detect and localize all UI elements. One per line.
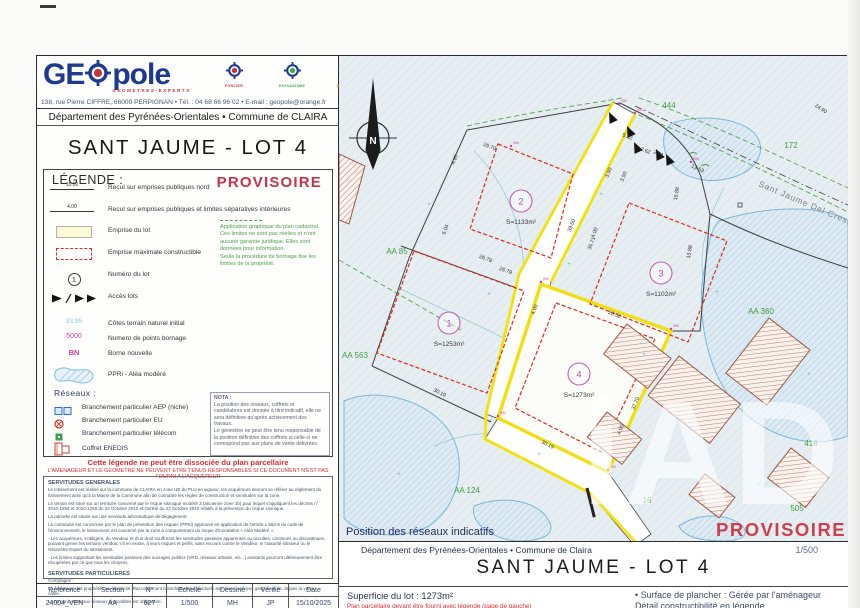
map-title: SANT JAUME - LOT 4 bbox=[339, 557, 848, 579]
logo-text-ge: GE bbox=[43, 58, 84, 92]
reseaux-heading: Réseaux : bbox=[54, 388, 96, 398]
nota-box: NOTA : La position des réseaux, coffrets… bbox=[210, 392, 330, 456]
title-divider bbox=[339, 586, 848, 587]
parcel-number-label: 172 bbox=[784, 141, 798, 150]
page-title: SANT JAUME - LOT 4 bbox=[37, 126, 339, 169]
borne-label: BN bbox=[500, 411, 506, 415]
nota-line: sera définitive qu'après achèvement des bbox=[214, 415, 326, 422]
table-header-cell: Vérifié bbox=[253, 584, 289, 597]
table-data-cell: MH bbox=[213, 597, 253, 608]
reseaux-item-label: Branchement particulier AEP (niche) bbox=[82, 404, 188, 411]
cadastral-note: Application graphique du plan cadastral.… bbox=[220, 220, 332, 268]
legend-item-label: PPRi - Aléa modéré bbox=[108, 371, 166, 378]
servitude-paragraph: - Les limites supportant les servitudes … bbox=[48, 555, 328, 566]
nota-line: travaux. bbox=[214, 421, 326, 428]
table-header-cell: Date bbox=[289, 584, 339, 597]
servitudes-generales-paragraphs: Le lotissement est réalisé sur la commun… bbox=[48, 487, 328, 566]
legend-item-label: Emprise du lot bbox=[108, 227, 150, 234]
borne-point bbox=[634, 112, 636, 114]
recul-15-symbol: 15.00 bbox=[50, 182, 98, 190]
table-data-cell: AA bbox=[93, 597, 133, 608]
servitude-paragraph: Le lotissement est réalisé sur la commun… bbox=[48, 487, 328, 498]
borne-point bbox=[670, 328, 672, 330]
borne-point bbox=[510, 145, 512, 147]
bornage-number-symbol: 5000 bbox=[50, 333, 98, 340]
borne-point bbox=[618, 103, 620, 105]
department-strip: Département des Pyrénées-Orientales • Co… bbox=[37, 109, 339, 126]
table-data-cell: JP bbox=[253, 597, 289, 608]
surface-plancher-note: • Surface de plancher : Gérée par l'amén… bbox=[635, 590, 821, 600]
borne-point bbox=[497, 415, 499, 417]
access-arrows-symbol bbox=[50, 291, 98, 309]
plan-sheet: GE pole GEOMETRES-EXPERTS bbox=[36, 55, 847, 608]
target-logo-icon bbox=[85, 60, 111, 91]
badge-label: PAYSAGISME bbox=[263, 84, 321, 88]
cadastral-note-line: Application graphique du plan cadastral. bbox=[220, 224, 332, 231]
scanned-plan-page: GE pole GEOMETRES-EXPERTS bbox=[0, 0, 860, 608]
lot-area: S=1253m² bbox=[434, 341, 465, 348]
table-data-row: 24004_VENAA6271/500MHJP15/10/2025 bbox=[37, 597, 339, 608]
parcel-number-label: 444 bbox=[662, 101, 676, 110]
badge-paysagisme: PAYSAGISME bbox=[263, 62, 321, 88]
title-block-table: RéférenceSectionN°EchelleDessinéVérifiéD… bbox=[37, 583, 339, 608]
cadastral-note-line: données pour information. bbox=[220, 246, 332, 253]
legend-item-label: Recul sur emprises publiques et limites … bbox=[108, 206, 291, 213]
lot-area-label: Superficie du lot : 1273m² bbox=[347, 591, 453, 601]
borne-point bbox=[540, 281, 542, 283]
spot-height-mark: + bbox=[427, 202, 431, 208]
position-reseaux-note: Position des réseaux indicatifs bbox=[346, 526, 494, 538]
cadastral-note-line: limites de la propriété. bbox=[220, 261, 332, 268]
servitudes-particulieres-title: SERVITUDES PARTICULIERES bbox=[48, 571, 328, 577]
spot-height-mark: + bbox=[487, 292, 491, 298]
nota-line: Le géomètre ne peut être tenu responsabl… bbox=[214, 428, 326, 435]
borne-point bbox=[690, 161, 692, 163]
table-header-cell: Section bbox=[93, 584, 133, 597]
table-header-cell: Référence bbox=[37, 584, 93, 597]
borne-label: BN bbox=[621, 99, 627, 103]
provisoire-stamp: PROVISOIRE bbox=[217, 174, 322, 191]
provisoire-map-stamp: PROVISOIRE bbox=[716, 519, 846, 540]
badge-label: FONCIER bbox=[205, 84, 263, 88]
servitudes-box: SERVITUDES GENERALES Le lotissement est … bbox=[43, 476, 333, 579]
spot-height-mark: + bbox=[537, 452, 541, 458]
cadastral-note-line: Seule la procédure de bornage fixe les bbox=[220, 254, 332, 261]
lot-number-circle-symbol: 1 bbox=[50, 269, 98, 287]
legend-warning-1: Cette légende ne peut être dissociée du … bbox=[37, 458, 339, 467]
legend-item-label: Numero de points bornage bbox=[108, 335, 186, 342]
lot-number: 2 bbox=[518, 197, 523, 208]
parcel-number-label: AA 124 bbox=[454, 486, 480, 495]
legend-box: LÉGENDE : PROVISOIRE 15.00 Recul sur emp… bbox=[43, 169, 333, 457]
servitude-paragraph: Le terrain est situé sur un territoire c… bbox=[48, 501, 328, 512]
badge-foncier: FONCIER bbox=[205, 62, 263, 88]
legend-item-label: Recul sur emprises publiques nord bbox=[108, 184, 210, 191]
north-label: N bbox=[369, 136, 376, 147]
borne-label: BN bbox=[673, 324, 679, 328]
iad-watermark: iAD bbox=[581, 371, 842, 536]
borne-nouvelle-symbol: BN bbox=[50, 348, 98, 357]
nota-title: NOTA : bbox=[214, 395, 326, 402]
reseaux-item-label: Branchement particulier EU bbox=[82, 417, 163, 424]
spot-height-mark: + bbox=[642, 352, 646, 358]
lot-number: 3 bbox=[658, 269, 663, 280]
geopole-logo: GE pole GEOMETRES-EXPERTS bbox=[43, 58, 191, 93]
servitude-paragraph: La commune est concernée par le plan de … bbox=[48, 522, 328, 533]
legend-item-label: Borne nouvelle bbox=[108, 350, 152, 357]
logo-text-pole: pole bbox=[112, 58, 170, 91]
nota-lines: La position des réseaux, coffrets etcand… bbox=[214, 402, 326, 448]
parcel-number-label: AA 563 bbox=[342, 351, 368, 360]
spot-height-symbol: 33.95 bbox=[50, 318, 98, 325]
map-scale: 1/500 bbox=[795, 545, 818, 555]
company-header: GE pole GEOMETRES-EXPERTS bbox=[37, 56, 339, 109]
nota-line: correspond pas aux plans de vente délivr… bbox=[214, 441, 326, 448]
target-badge-icon bbox=[226, 62, 243, 79]
legend-item-label: Accès lots bbox=[108, 293, 138, 300]
spot-height-mark: + bbox=[599, 192, 603, 198]
site-plan-svg: N Sant Jaume Del Crest 444172AA 85AA 563… bbox=[339, 56, 848, 541]
table-header-cell: Echelle bbox=[167, 584, 213, 597]
parcel-plan-red-note: Plan parcellaire devant être fourni avec… bbox=[347, 603, 531, 608]
borne-label: BN bbox=[637, 108, 643, 112]
spot-height-mark: + bbox=[715, 290, 719, 296]
nota-line: la position définitive des coffrets si c… bbox=[214, 435, 326, 442]
logo-subtitle: GEOMETRES-EXPERTS bbox=[112, 88, 190, 93]
site-plan-panel: N Sant Jaume Del Crest 444172AA 85AA 563… bbox=[339, 56, 848, 608]
table-header-cell: N° bbox=[133, 584, 167, 597]
table-data-cell: 1/500 bbox=[167, 597, 213, 608]
borne-label: BN bbox=[543, 277, 549, 281]
lot-area: S=1102m² bbox=[646, 291, 677, 298]
legend-panel: GE pole GEOMETRES-EXPERTS bbox=[37, 56, 339, 608]
reseaux-item-label: Branchement particulier télécom bbox=[82, 430, 177, 437]
servitudes-generales-title: SERVITUDES GENERALES bbox=[48, 480, 328, 486]
reseaux-item-label: Coffret ENEDIS bbox=[82, 445, 128, 452]
legend-item-label: Côtes terrain naturel initial bbox=[108, 320, 185, 327]
red-dashed-rect-symbol bbox=[50, 247, 98, 265]
nota-line: La position des réseaux, coffrets et bbox=[214, 402, 326, 409]
borne-label: BN bbox=[693, 157, 699, 161]
lot-number: 1 bbox=[446, 319, 451, 330]
map-title-block: Département des Pyrénées-Orientales • Co… bbox=[339, 541, 848, 608]
spot-height-mark: + bbox=[397, 472, 401, 478]
scan-artifact bbox=[40, 5, 56, 8]
recul-4-symbol: 4.00 bbox=[50, 204, 98, 212]
borne-label: BN bbox=[513, 141, 519, 145]
legend-item-label: Numéro du lot bbox=[108, 271, 149, 278]
legend-item-label: Emprise maximale constructible bbox=[108, 249, 201, 256]
servitude-paragraph: - Les acquéreurs, s'obligent, du Vendeur… bbox=[48, 536, 328, 553]
cadastral-note-line: Ces limites ne sont pas réelles et n'ont bbox=[220, 231, 332, 238]
target-badge-icon bbox=[284, 62, 301, 79]
constructibilite-note: Détail constructibilité en légende bbox=[635, 601, 765, 608]
spot-height-mark: + bbox=[567, 262, 571, 268]
servitude-paragraph: La parcelle est située sur une servitude… bbox=[48, 514, 328, 520]
parcel-number-label: AA 85 bbox=[386, 247, 408, 256]
table-data-cell: 24004_VEN bbox=[37, 597, 93, 608]
table-header-row: RéférenceSectionN°EchelleDessinéVérifiéD… bbox=[37, 584, 339, 597]
cadastral-note-line: aucune garantie juridique. Elles sont bbox=[220, 239, 332, 246]
parcel-number-label: AA 360 bbox=[748, 307, 774, 316]
table-data-cell: 15/10/2025 bbox=[289, 597, 339, 608]
company-address: 138, rue Pierre CIFFRE, 66000 PERPIGNAN … bbox=[41, 99, 326, 106]
table-header-cell: Dessiné bbox=[213, 584, 253, 597]
lot-area: S=1133m² bbox=[506, 219, 537, 226]
yellow-rect-symbol bbox=[50, 225, 98, 243]
map-dept-line: Département des Pyrénées-Orientales • Co… bbox=[361, 545, 592, 555]
nota-line: candélabres est donnée à titre indicatif… bbox=[214, 408, 326, 415]
table-data-cell: 627 bbox=[133, 597, 167, 608]
